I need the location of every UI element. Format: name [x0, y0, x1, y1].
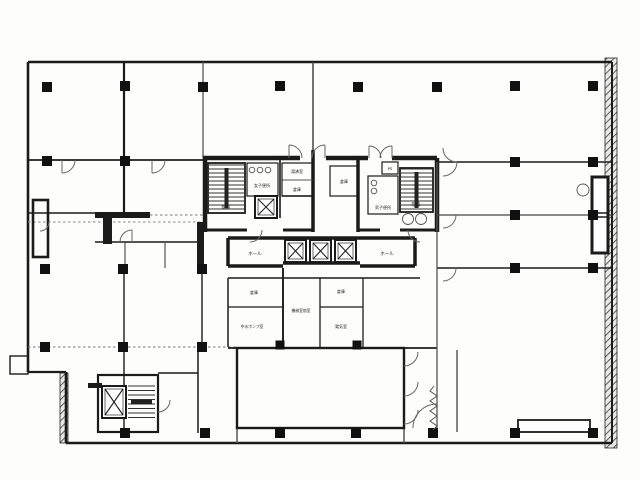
structural-column — [197, 342, 207, 352]
room-label: 湯沸室 — [291, 168, 303, 174]
door-swing-arc — [443, 162, 457, 176]
door-swing-arc — [380, 146, 392, 158]
room-outline — [10, 356, 28, 374]
structural-column — [510, 210, 520, 220]
door-swing-arc — [408, 230, 420, 242]
room-label: 男子便所 — [375, 204, 391, 210]
structural-column — [275, 81, 285, 91]
solid-wall-segment — [88, 383, 102, 388]
room-label: 倉庫 — [340, 178, 348, 184]
plumbing-fixture — [371, 180, 377, 186]
structural-column — [588, 210, 598, 220]
plumbing-fixture — [371, 188, 377, 194]
structural-column — [118, 264, 128, 274]
structural-column — [120, 428, 130, 438]
room-label: PS — [388, 166, 393, 171]
solid-wall-segment — [95, 212, 150, 218]
plumbing-fixture — [265, 167, 271, 173]
structural-column — [432, 82, 442, 92]
door-swing-arc — [443, 148, 457, 162]
room-outline — [518, 420, 590, 432]
structural-column — [351, 428, 361, 438]
structural-column — [510, 81, 520, 91]
floor-plan-svg: 階段女子便所湯沸室倉庫倉庫男子便所階段PSホールホール倉庫中水ポンプ室機械室前室… — [0, 0, 640, 480]
door-swing-arc — [443, 268, 456, 281]
plumbing-fixture — [577, 184, 589, 196]
door-swing-arc — [250, 230, 262, 242]
room-label: 倉庫 — [293, 186, 301, 192]
structural-column — [42, 156, 52, 166]
solid-wall-segment — [103, 218, 112, 244]
door-swing-arc — [404, 382, 418, 396]
structural-column — [275, 428, 285, 438]
door-swing-arc — [120, 230, 132, 242]
solid-wall-segment — [197, 222, 204, 270]
plumbing-fixture — [416, 214, 427, 225]
room-outline — [237, 348, 404, 428]
room-label: 女子便所 — [254, 182, 270, 188]
room-label: 階段 — [222, 204, 231, 211]
structural-column — [353, 341, 362, 350]
structural-column — [40, 342, 50, 352]
door-swing-arc — [404, 352, 418, 366]
door-swing-arc — [443, 215, 456, 228]
plumbing-fixture — [257, 167, 263, 173]
floor-plan: 階段女子便所湯沸室倉庫倉庫男子便所階段PSホールホール倉庫中水ポンプ室機械室前室… — [0, 0, 640, 480]
structural-column — [353, 82, 363, 92]
door-swing-arc — [413, 404, 437, 428]
door-swing-arc — [152, 160, 165, 173]
stair-rail — [131, 400, 152, 404]
structural-column — [197, 264, 207, 274]
room-label: ホール — [380, 251, 394, 257]
door-swing-arc — [369, 146, 381, 158]
structural-column — [588, 263, 598, 273]
structural-column — [510, 263, 520, 273]
room-label: 中水ポンプ室 — [241, 324, 264, 329]
structural-column — [510, 157, 520, 167]
room-label: 電気室 — [335, 323, 347, 329]
room-label: 倉庫 — [337, 288, 345, 294]
stair-rail — [225, 168, 229, 208]
structural-column — [40, 264, 50, 274]
room-label: ホール — [248, 251, 262, 257]
plumbing-fixture — [403, 214, 414, 225]
plumbing-fixture — [249, 167, 255, 173]
structural-column — [200, 428, 210, 438]
structural-column — [276, 341, 285, 350]
structural-column — [588, 428, 598, 438]
room-label: 機械室前室 — [292, 308, 311, 313]
structural-column — [42, 82, 52, 92]
structural-column — [198, 82, 208, 92]
door-swing-arc — [62, 160, 75, 173]
structural-column — [118, 342, 128, 352]
room-label: 倉庫 — [250, 289, 258, 295]
structural-column — [120, 156, 130, 166]
structural-column — [120, 81, 130, 91]
partition-break-line — [430, 386, 437, 430]
plan-layers: 階段女子便所湯沸室倉庫倉庫男子便所階段PSホールホール倉庫中水ポンプ室機械室前室… — [10, 58, 617, 448]
structural-column — [588, 81, 598, 91]
room-label: 階段 — [412, 201, 421, 208]
structural-column — [588, 157, 598, 167]
structural-column — [510, 428, 520, 438]
door-swing-arc — [158, 400, 170, 412]
